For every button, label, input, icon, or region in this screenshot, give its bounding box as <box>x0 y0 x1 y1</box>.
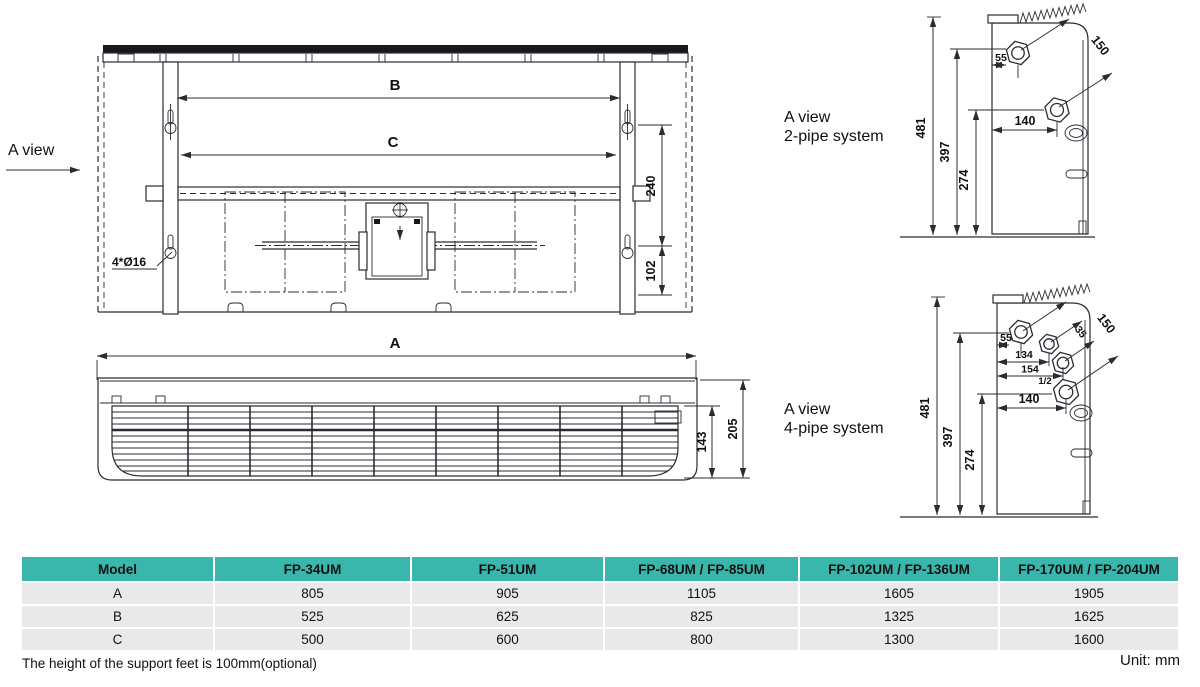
coil-fins <box>1024 284 1090 303</box>
dim-label-134: 134 <box>1015 349 1033 361</box>
table-header-model: Model <box>22 557 213 581</box>
table-value: 1905 <box>1000 583 1178 604</box>
dim-label-274: 274 <box>957 170 971 191</box>
table-header-fp68-85: FP-68UM / FP-85UM <box>605 557 798 581</box>
table-header-fp102-136: FP-102UM / FP-136UM <box>800 557 998 581</box>
dim-label-140: 140 <box>1019 392 1040 406</box>
table-header-fp34: FP-34UM <box>215 557 410 581</box>
dim-label-150: 150 <box>1088 33 1112 58</box>
air-grille <box>112 406 678 476</box>
dim-label-397: 397 <box>938 142 952 163</box>
dim-143-205: 143 205 <box>684 380 750 478</box>
side-view-4pipe: A view 4-pipe system 481 397 <box>784 284 1118 517</box>
dim-label-B: B <box>390 77 401 94</box>
dim-label-C: C <box>388 134 399 151</box>
pipe4-body <box>993 284 1092 514</box>
table-value: 1605 <box>800 583 998 604</box>
pipe4-title-1: A view <box>784 401 831 418</box>
dim-label-240: 240 <box>644 176 658 197</box>
page: A view <box>0 0 1200 687</box>
table-value: 1105 <box>605 583 798 604</box>
dimensions-table: Model FP-34UM FP-51UM FP-68UM / FP-85UM … <box>22 557 1180 650</box>
coil-fins <box>1020 4 1086 23</box>
table-value: 825 <box>605 606 798 627</box>
dim-label-140: 140 <box>1015 114 1036 128</box>
pipe-connection-nut <box>1006 41 1029 64</box>
pipe2-title-1: A view <box>784 109 831 126</box>
dim-label-154: 154 <box>1021 364 1039 376</box>
unit-label: Unit: mm <box>1120 652 1180 669</box>
dim-label-102: 102 <box>644 261 658 282</box>
dim-label-55: 55 <box>995 52 1007 64</box>
table-value: 1300 <box>800 629 998 650</box>
table-value: 905 <box>412 583 603 604</box>
table-value: 1625 <box>1000 606 1178 627</box>
row-label: A <box>22 583 213 604</box>
motor <box>359 202 435 279</box>
table-value: 1600 <box>1000 629 1178 650</box>
side-view-2pipe: A view 2-pipe system 481 397 274 <box>784 4 1112 237</box>
table-value: 500 <box>215 629 410 650</box>
pipe-connection-nut <box>1039 334 1058 353</box>
dim-label-274: 274 <box>963 450 977 471</box>
bottom-feet-tabs <box>228 303 451 312</box>
technical-drawings: A view <box>0 0 1200 552</box>
dim-label-A: A <box>390 335 401 352</box>
dim-label-397: 397 <box>941 427 955 448</box>
pipe4-title-2: 4-pipe system <box>784 420 884 437</box>
table-value: 1325 <box>800 606 998 627</box>
table-value: 625 <box>412 606 603 627</box>
dim-240-102: 240 102 <box>638 125 672 295</box>
dim-label-143: 143 <box>695 432 709 453</box>
table-header-fp170-204: FP-170UM / FP-204UM <box>1000 557 1178 581</box>
table-value: 800 <box>605 629 798 650</box>
table-value: 600 <box>412 629 603 650</box>
a-view-pointer-label: A view <box>8 142 55 159</box>
row-label: B <box>22 606 213 627</box>
dim-label-205: 205 <box>726 419 740 440</box>
dim-label-150: 150 <box>1094 311 1118 336</box>
pipe-connection-nut <box>1045 98 1069 122</box>
front-view-drawing: A <box>97 335 750 480</box>
table-header-fp51: FP-51UM <box>412 557 603 581</box>
dim-label-481: 481 <box>914 118 928 139</box>
dim-label-481: 481 <box>918 398 932 419</box>
pipe2-title-2: 2-pipe system <box>784 128 884 145</box>
table-value: 805 <box>215 583 410 604</box>
support-feet-note: The height of the support feet is 100mm(… <box>22 656 317 671</box>
rear-view-drawing: A view <box>6 45 692 314</box>
row-label: C <box>22 629 213 650</box>
table-value: 525 <box>215 606 410 627</box>
top-coil-strip <box>103 45 688 53</box>
holes-label: 4*Ø16 <box>112 255 146 269</box>
dim-label-half-inch: 1/2 <box>1038 376 1051 387</box>
pipe-connection-nut <box>1009 320 1032 343</box>
dim-label-55: 55 <box>1000 332 1012 344</box>
